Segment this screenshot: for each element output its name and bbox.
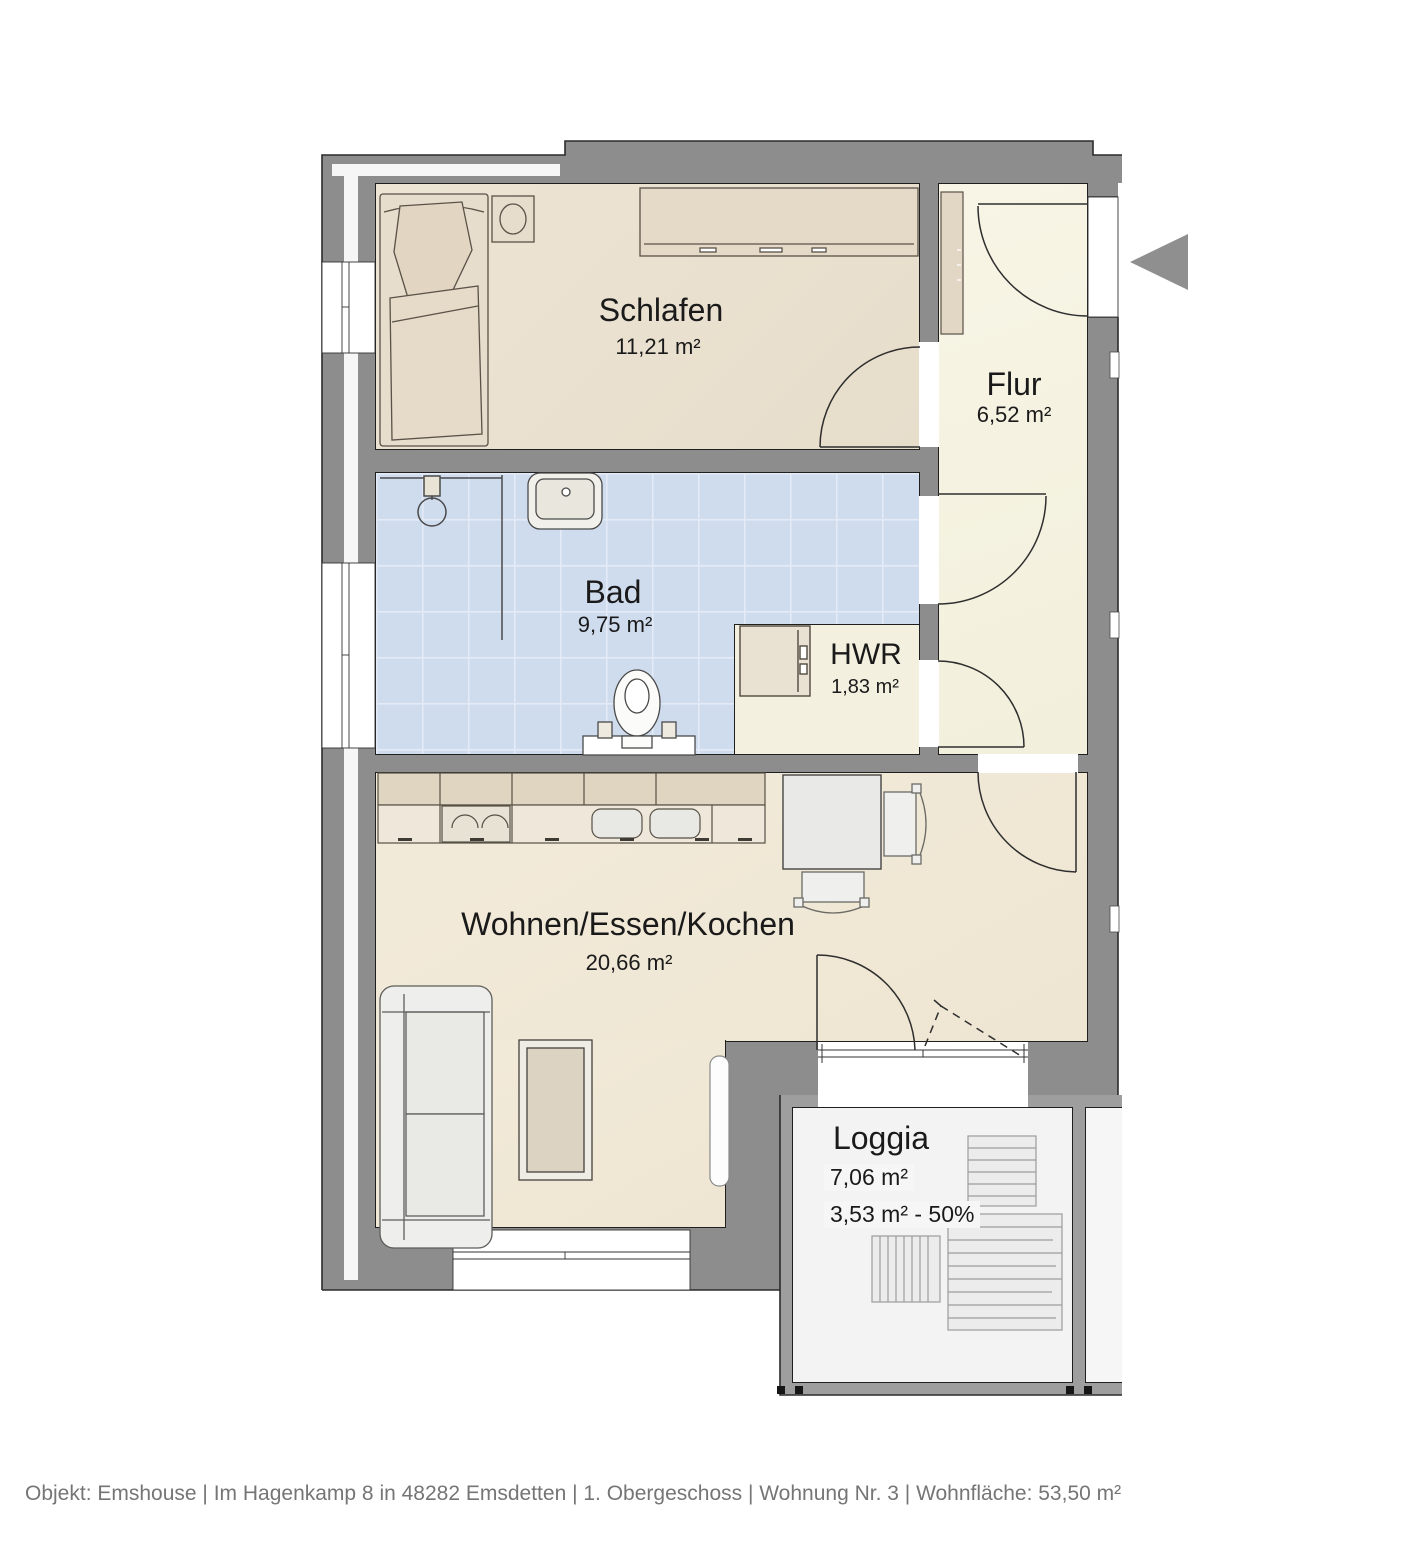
label-bad: Bad	[585, 574, 642, 611]
label-schlafen-area: 11,21 m²	[615, 334, 700, 360]
wall-schlafen-flur	[920, 183, 938, 450]
label-schlafen: Schlafen	[599, 292, 724, 329]
plan-footer: Objekt: Emshouse | Im Hagenkamp 8 in 482…	[25, 1482, 1121, 1506]
wall-loggia-left	[780, 1095, 792, 1395]
wall-loggia-bottom	[780, 1383, 1122, 1395]
label-hwr-area: 1,83 m²	[831, 676, 899, 699]
wall-loggia-top-b	[1028, 1095, 1122, 1107]
label-flur-area: 6,52 m²	[977, 402, 1052, 428]
wall-loggia-door-left	[780, 1042, 818, 1095]
label-loggia-area-half: 3,53 m² - 50%	[824, 1201, 980, 1228]
wall-top-corner	[1093, 155, 1122, 183]
wall-insulation-top	[332, 164, 560, 176]
wall-bottom-exterior	[322, 1228, 780, 1290]
wall-loggia-top-a	[792, 1095, 818, 1107]
label-bad-area: 9,75 m²	[578, 612, 653, 638]
entrance-arrow-icon	[1130, 234, 1188, 290]
loggia-threshold	[818, 1044, 1028, 1063]
wall-right-exterior	[1088, 317, 1118, 1095]
room-neighbor-loggia	[1085, 1107, 1122, 1383]
wall-top-right	[565, 141, 1093, 183]
label-hwr: HWR	[830, 638, 902, 672]
label-loggia: Loggia	[833, 1120, 929, 1157]
room-wohnen-lower	[375, 1040, 726, 1228]
wall-bad-living	[375, 755, 1088, 772]
floor-plan: Schlafen 11,21 m² Flur 6,52 m² Bad 9,75 …	[0, 0, 1420, 1566]
wall-loggia-divider	[1073, 1107, 1085, 1383]
label-flur: Flur	[986, 366, 1041, 403]
wall-insulation-left	[344, 165, 358, 1280]
label-wohnen: Wohnen/Essen/Kochen	[461, 906, 795, 943]
wall-schlafen-bad	[375, 450, 938, 472]
room-flur	[938, 183, 1088, 755]
wall-right-above-door	[1088, 183, 1118, 197]
wall-loggia-door-right	[1028, 1042, 1088, 1095]
label-loggia-area: 7,06 m²	[824, 1164, 914, 1191]
label-wohnen-area: 20,66 m²	[586, 950, 673, 976]
